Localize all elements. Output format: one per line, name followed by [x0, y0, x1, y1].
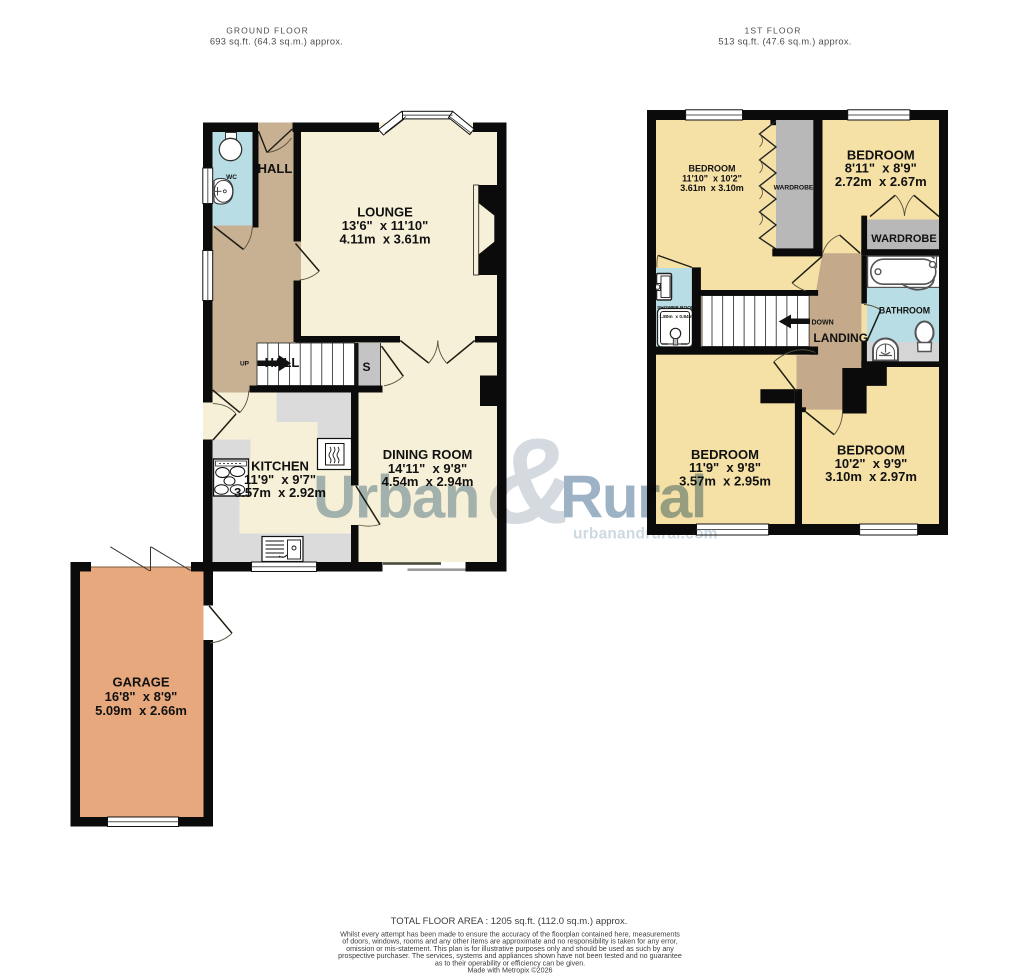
svg-text:1.80m x 0.84m: 1.80m x 0.84m: [659, 314, 693, 320]
svg-text:WARDROBE: WARDROBE: [871, 233, 936, 245]
svg-text:Made with Metropix ©2026: Made with Metropix ©2026: [467, 967, 552, 975]
svg-text:GARAGE: GARAGE: [112, 675, 169, 690]
svg-text:BATHROOM: BATHROOM: [879, 306, 930, 316]
svg-text:4.11m x 3.61m: 4.11m x 3.61m: [339, 232, 430, 247]
svg-text:HALL: HALL: [258, 161, 293, 176]
svg-text:BEDROOM: BEDROOM: [689, 164, 736, 174]
svg-text:WARDROBE: WARDROBE: [774, 185, 814, 192]
svg-text:1ST FLOOR: 1ST FLOOR: [745, 26, 802, 36]
svg-text:HALL: HALL: [265, 355, 300, 370]
svg-text:urbanandrural.com: urbanandrural.com: [573, 526, 718, 543]
svg-text:S: S: [362, 360, 370, 374]
svg-text:Rural: Rural: [560, 464, 706, 531]
svg-text:TOTAL FLOOR AREA : 1205 sq.ft.: TOTAL FLOOR AREA : 1205 sq.ft. (112.0 sq…: [391, 916, 628, 927]
svg-text:SHOWER ROOM: SHOWER ROOM: [657, 305, 695, 311]
svg-text:Urban: Urban: [313, 464, 479, 531]
svg-text:693 sq.ft. (64.3 sq.m.) approx: 693 sq.ft. (64.3 sq.m.) approx.: [210, 37, 343, 47]
svg-text:DINING ROOM: DINING ROOM: [383, 447, 473, 462]
svg-text:GROUND FLOOR: GROUND FLOOR: [226, 26, 309, 36]
svg-text:5.09m x 2.66m: 5.09m x 2.66m: [95, 703, 187, 718]
svg-text:UP: UP: [240, 361, 250, 368]
svg-text:LANDING: LANDING: [813, 331, 868, 345]
svg-text:11'10" x 10'2": 11'10" x 10'2": [682, 173, 742, 183]
svg-text:2.72m x 2.67m: 2.72m x 2.67m: [835, 174, 927, 189]
svg-text:3.10m x 2.97m: 3.10m x 2.97m: [825, 469, 917, 484]
svg-text:16'8" x 8'9": 16'8" x 8'9": [105, 689, 178, 704]
svg-text:WC: WC: [226, 174, 237, 181]
svg-text:513 sq.ft. (47.6 sq.m.) approx: 513 sq.ft. (47.6 sq.m.) approx.: [718, 37, 851, 47]
svg-text:3.61m x 3.10m: 3.61m x 3.10m: [680, 183, 744, 193]
svg-text:DOWN: DOWN: [812, 320, 834, 327]
